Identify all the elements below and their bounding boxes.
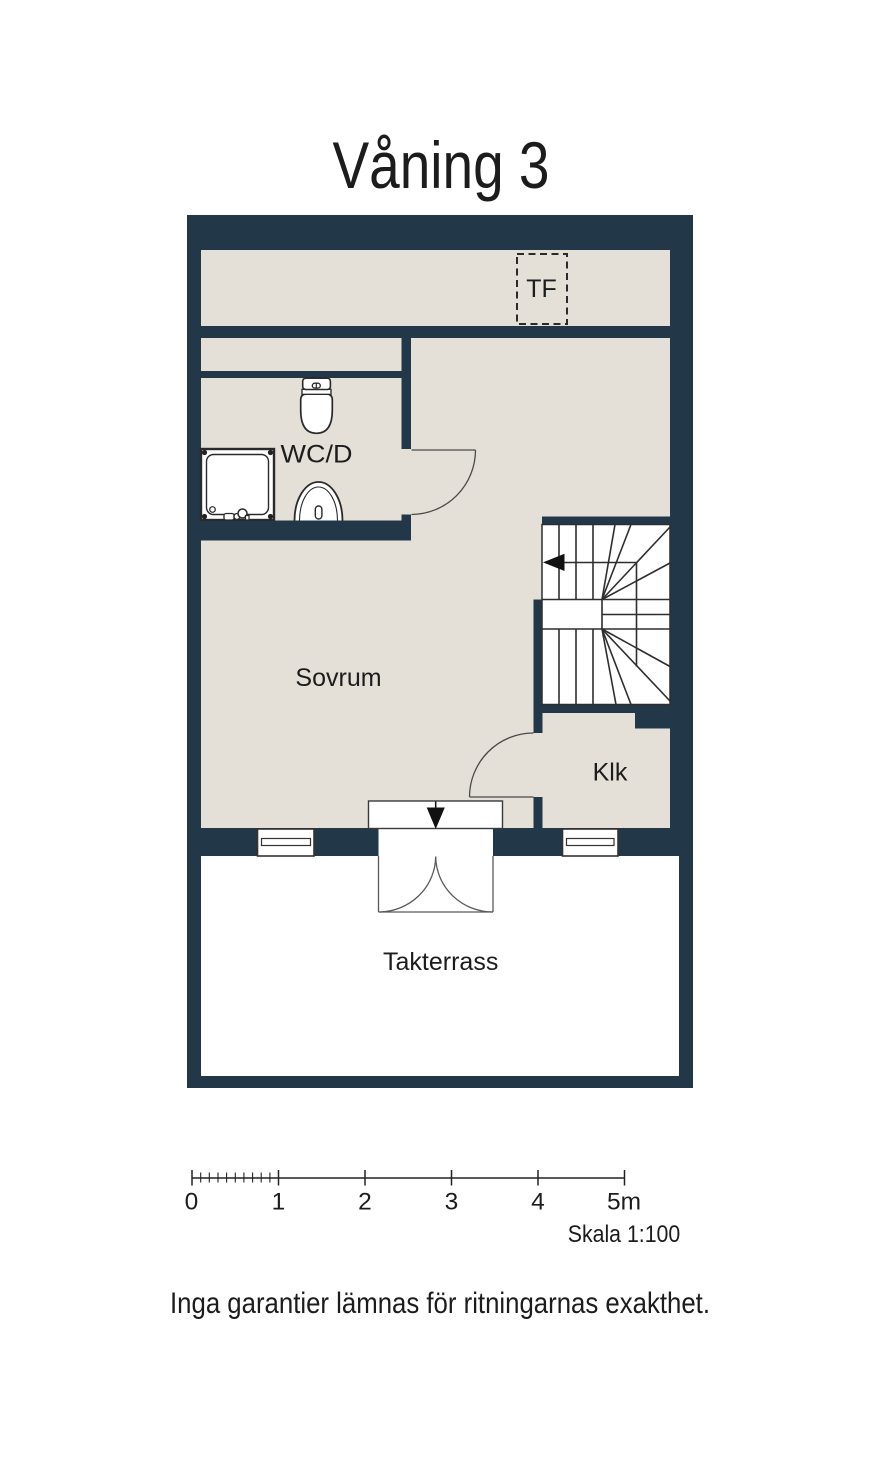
svg-text:0: 0 bbox=[185, 1189, 199, 1216]
svg-text:4: 4 bbox=[531, 1189, 545, 1216]
svg-text:TF: TF bbox=[526, 275, 557, 303]
svg-text:Klk: Klk bbox=[593, 758, 628, 786]
svg-text:Inga garantier lämnas för ritn: Inga garantier lämnas för ritningarnas e… bbox=[170, 1287, 710, 1320]
svg-text:Våning 3: Våning 3 bbox=[333, 128, 550, 202]
svg-text:2: 2 bbox=[358, 1189, 372, 1216]
svg-text:3: 3 bbox=[445, 1189, 459, 1216]
svg-text:WC/D: WC/D bbox=[281, 441, 353, 469]
svg-text:Skala 1:100: Skala 1:100 bbox=[568, 1221, 681, 1248]
svg-text:Takterrass: Takterrass bbox=[383, 948, 498, 976]
svg-text:5m: 5m bbox=[607, 1189, 641, 1216]
svg-text:Sovrum: Sovrum bbox=[295, 664, 381, 692]
svg-text:1: 1 bbox=[272, 1189, 286, 1216]
